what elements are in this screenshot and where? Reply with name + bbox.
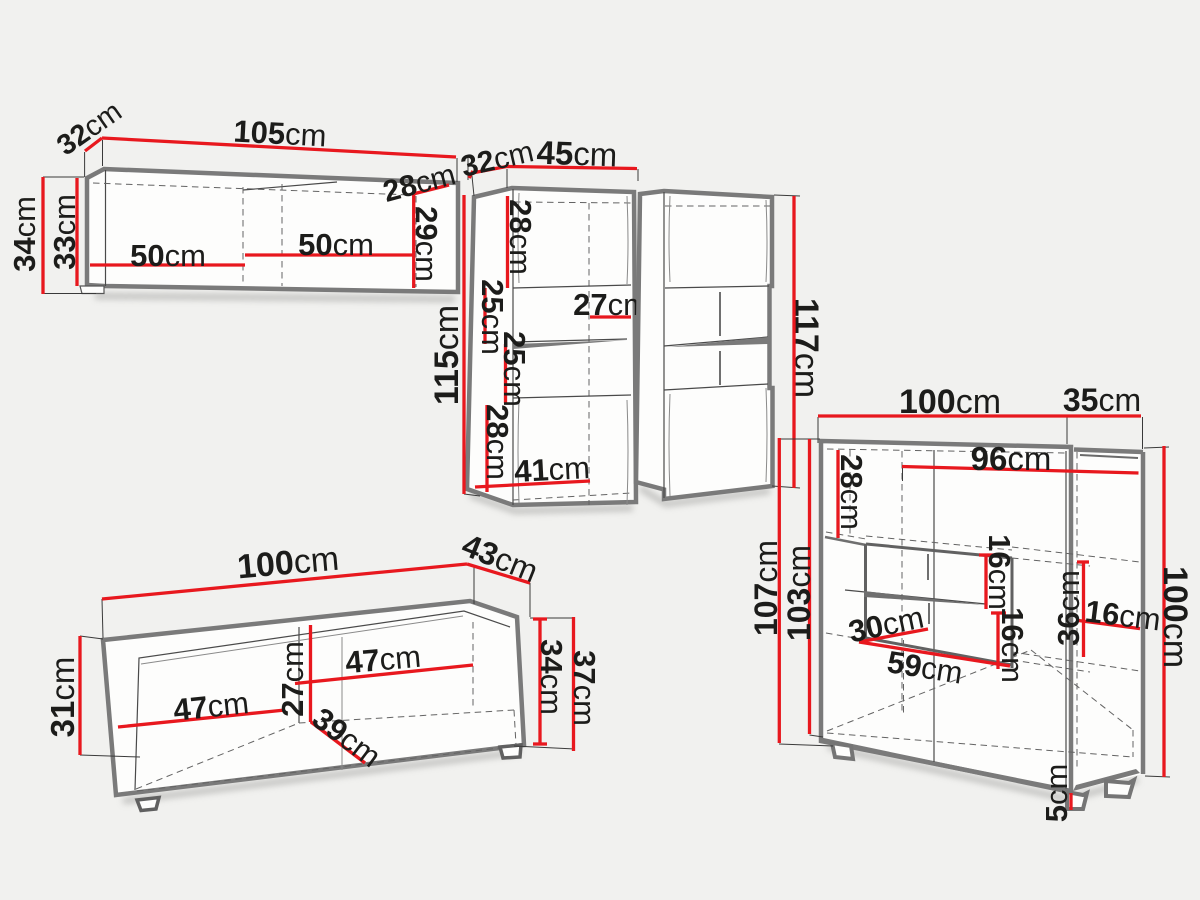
svg-text:45cm: 45cm [536,134,618,174]
svg-text:5cm: 5cm [1039,764,1074,823]
svg-text:31cm: 31cm [44,657,81,738]
svg-text:28cm: 28cm [503,199,538,275]
svg-text:115cm: 115cm [428,305,466,405]
svg-text:96cm: 96cm [971,440,1052,477]
svg-text:47cm: 47cm [344,639,423,680]
svg-text:34cm: 34cm [534,639,569,715]
svg-text:25cm: 25cm [497,331,532,407]
svg-text:16cm: 16cm [982,534,1017,610]
svg-text:37cm: 37cm [567,650,602,726]
svg-text:105cm: 105cm [233,114,328,154]
svg-text:36cm: 36cm [1051,570,1086,646]
svg-text:16cm: 16cm [995,607,1030,683]
svg-text:27cm: 27cm [275,641,310,717]
svg-text:28cm: 28cm [834,454,869,530]
svg-text:107cm: 107cm [748,540,784,636]
svg-text:29cm: 29cm [409,206,444,282]
svg-text:100cm: 100cm [1156,566,1194,668]
svg-text:50cm: 50cm [130,238,206,273]
svg-text:100cm: 100cm [899,383,1001,421]
svg-text:35cm: 35cm [1063,382,1141,418]
svg-text:34cm: 34cm [7,196,42,272]
svg-text:33cm: 33cm [47,194,82,270]
svg-text:41cm: 41cm [513,450,591,489]
svg-text:103cm: 103cm [781,545,817,641]
svg-text:50cm: 50cm [298,227,374,262]
svg-text:28cm: 28cm [480,404,515,480]
